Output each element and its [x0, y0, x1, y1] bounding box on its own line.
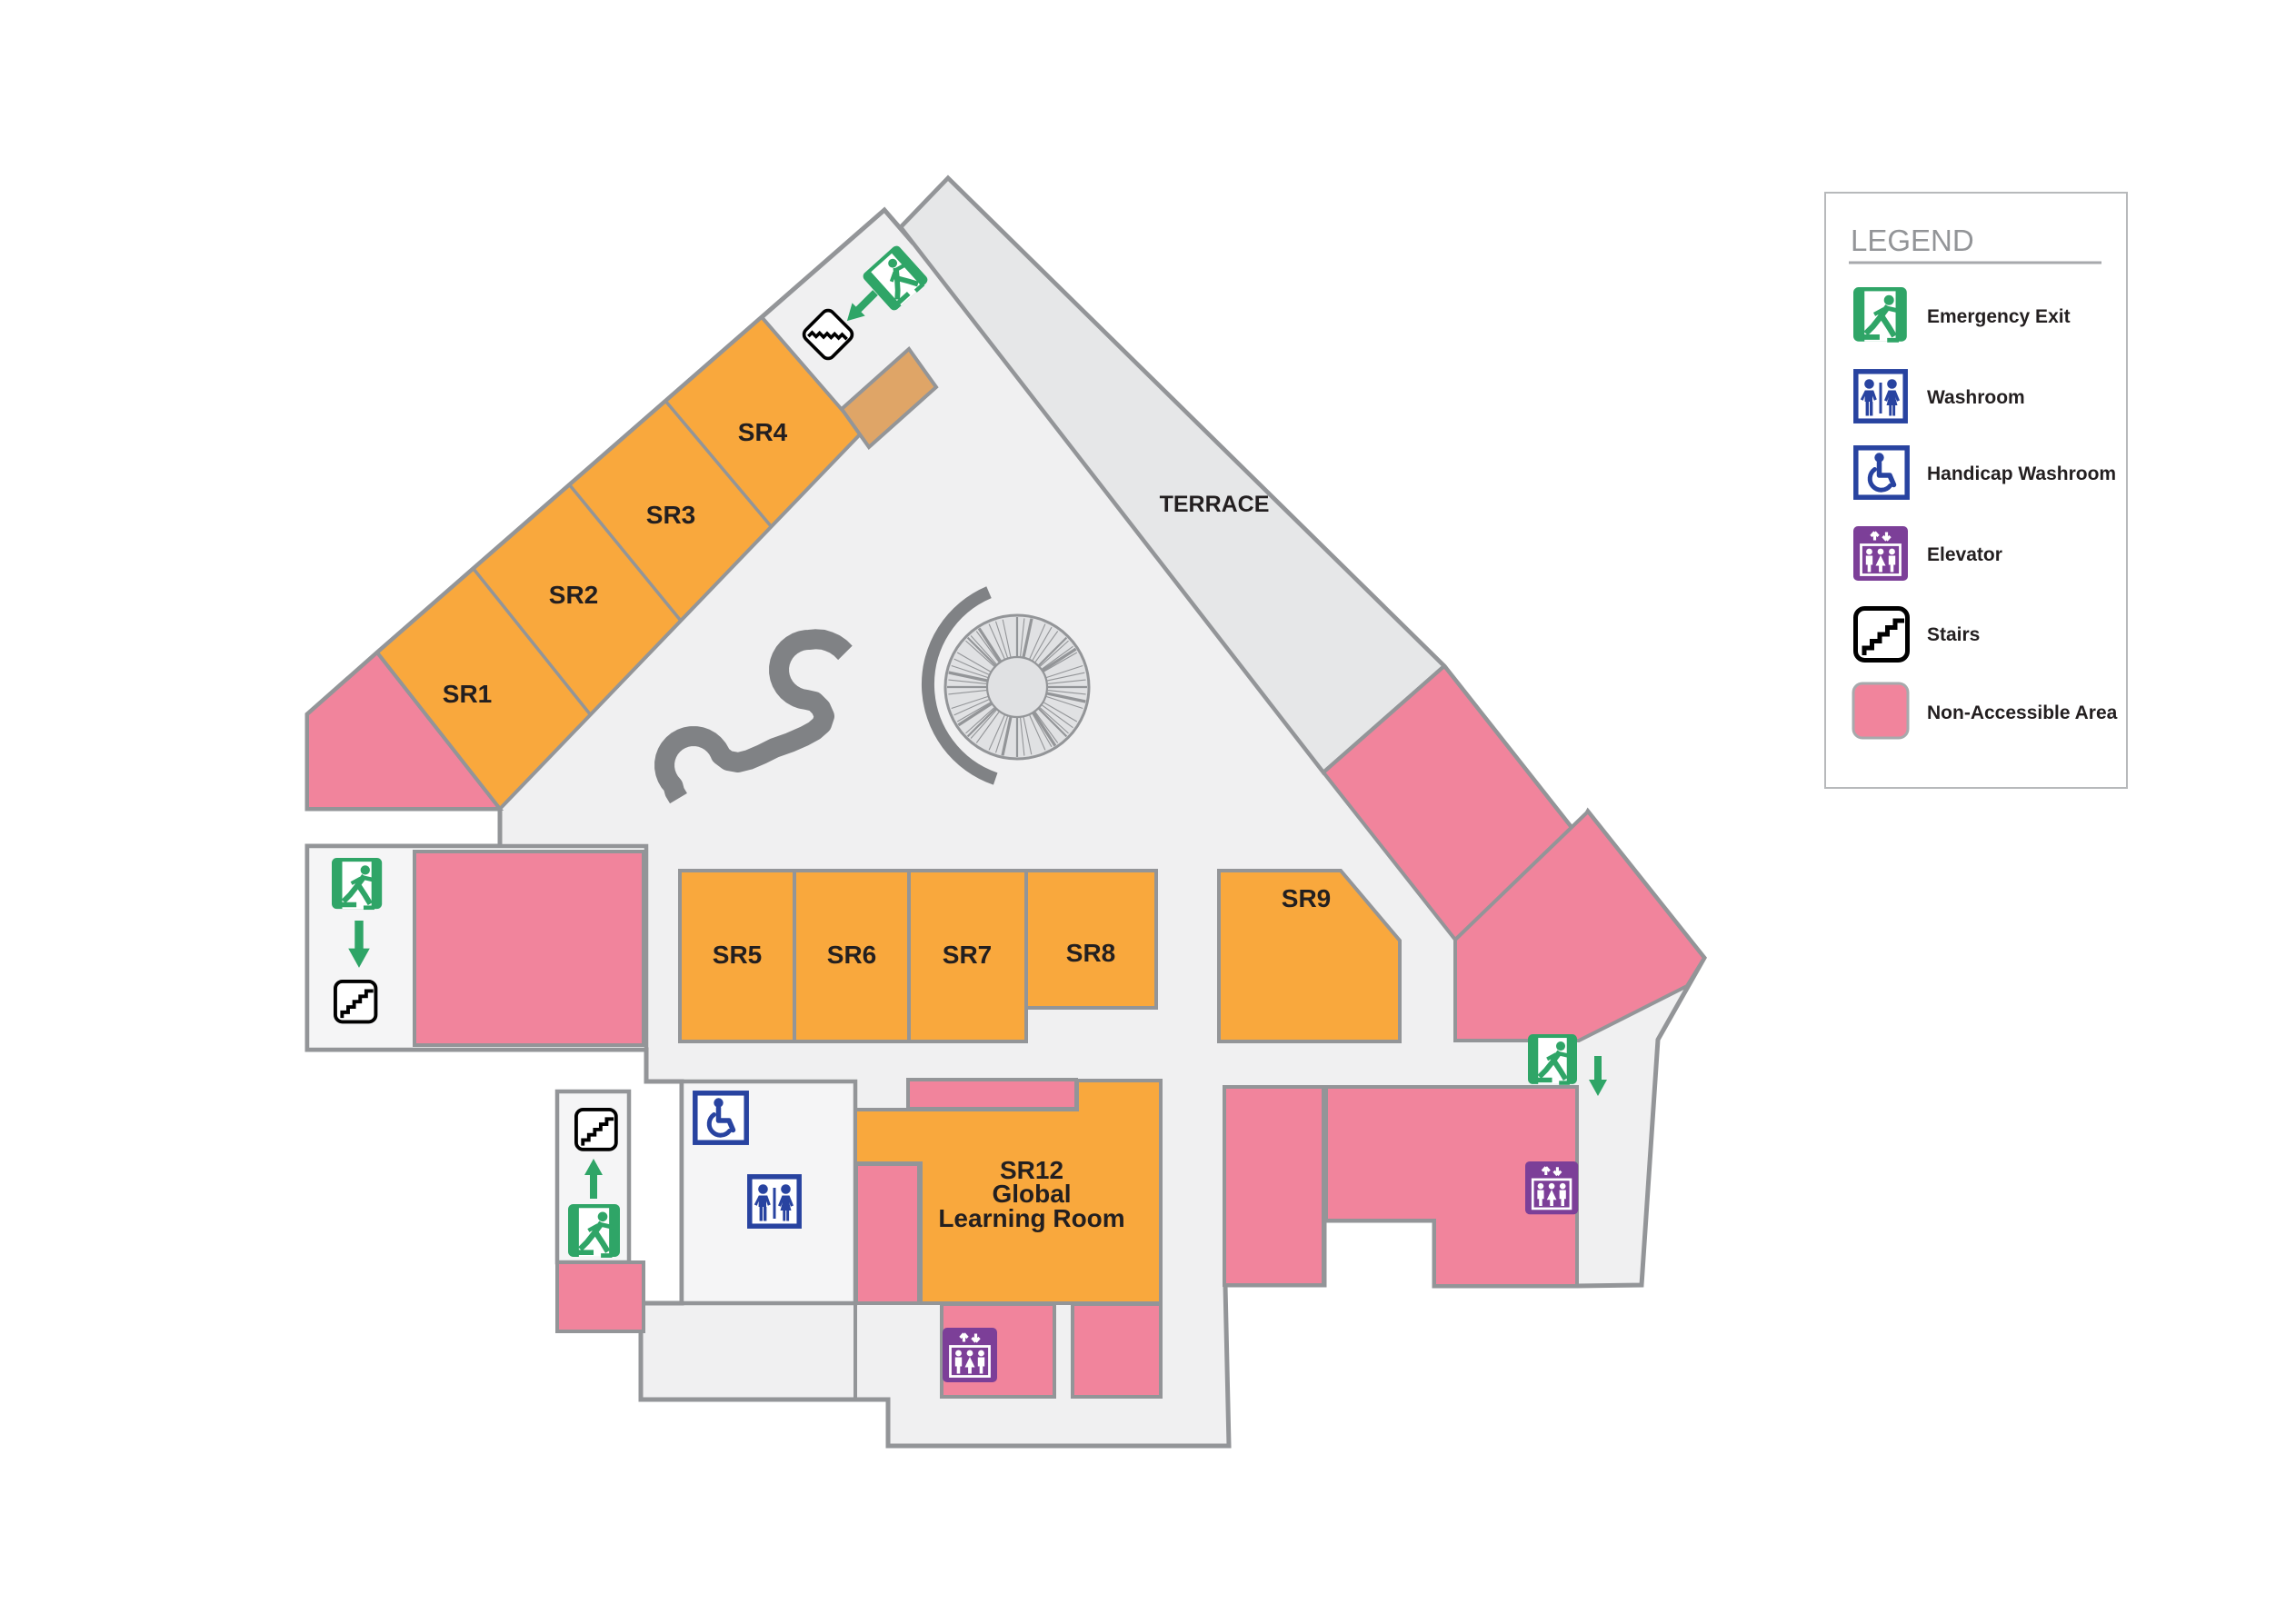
svg-text:SR7: SR7	[943, 941, 992, 969]
svg-text:Elevator: Elevator	[1927, 544, 2002, 565]
svg-text:SR1: SR1	[443, 680, 492, 708]
svg-text:Non-Accessible Area: Non-Accessible Area	[1927, 702, 2118, 723]
svg-text:Emergency Exit: Emergency Exit	[1927, 306, 2071, 327]
svg-text:Learning Room: Learning Room	[938, 1204, 1124, 1232]
svg-text:SR4: SR4	[738, 418, 788, 446]
svg-text:SR9: SR9	[1282, 884, 1331, 912]
svg-text:SR3: SR3	[646, 501, 695, 529]
svg-text:Washroom: Washroom	[1927, 387, 2025, 408]
svg-text:Handicap Washroom: Handicap Washroom	[1927, 463, 2116, 484]
svg-text:Stairs: Stairs	[1927, 624, 1980, 645]
svg-text:SR8: SR8	[1066, 939, 1115, 967]
svg-text:TERRACE: TERRACE	[1160, 492, 1270, 517]
svg-text:LEGEND: LEGEND	[1851, 224, 1974, 257]
svg-text:SR2: SR2	[549, 581, 598, 609]
svg-text:SR6: SR6	[827, 941, 876, 969]
svg-text:SR5: SR5	[713, 941, 762, 969]
